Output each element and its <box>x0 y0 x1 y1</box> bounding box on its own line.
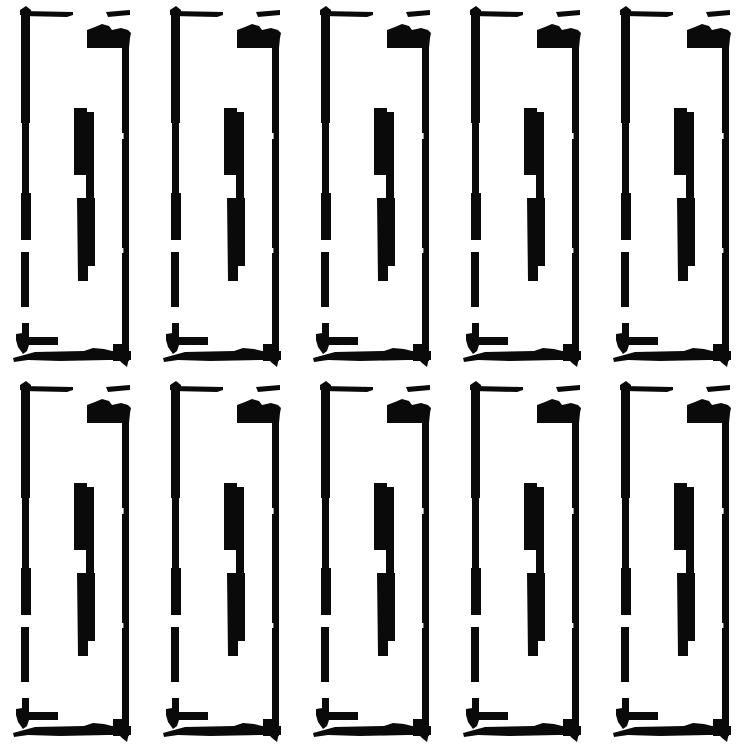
adhesive-strip-tile <box>613 6 731 367</box>
pattern-canvas <box>0 0 750 750</box>
adhesive-strip-tile <box>613 381 731 742</box>
adhesive-strip-tile <box>163 381 281 742</box>
adhesive-strip-tile <box>463 6 581 367</box>
adhesive-strip-tile <box>13 381 131 742</box>
adhesive-strip-tile <box>313 6 431 367</box>
adhesive-strip-tile <box>163 6 281 367</box>
adhesive-strip-tile <box>463 381 581 742</box>
adhesive-strip-tile <box>13 6 131 367</box>
tile-grid <box>0 0 750 750</box>
tile-instances <box>13 6 731 742</box>
adhesive-strip-tile <box>313 381 431 742</box>
